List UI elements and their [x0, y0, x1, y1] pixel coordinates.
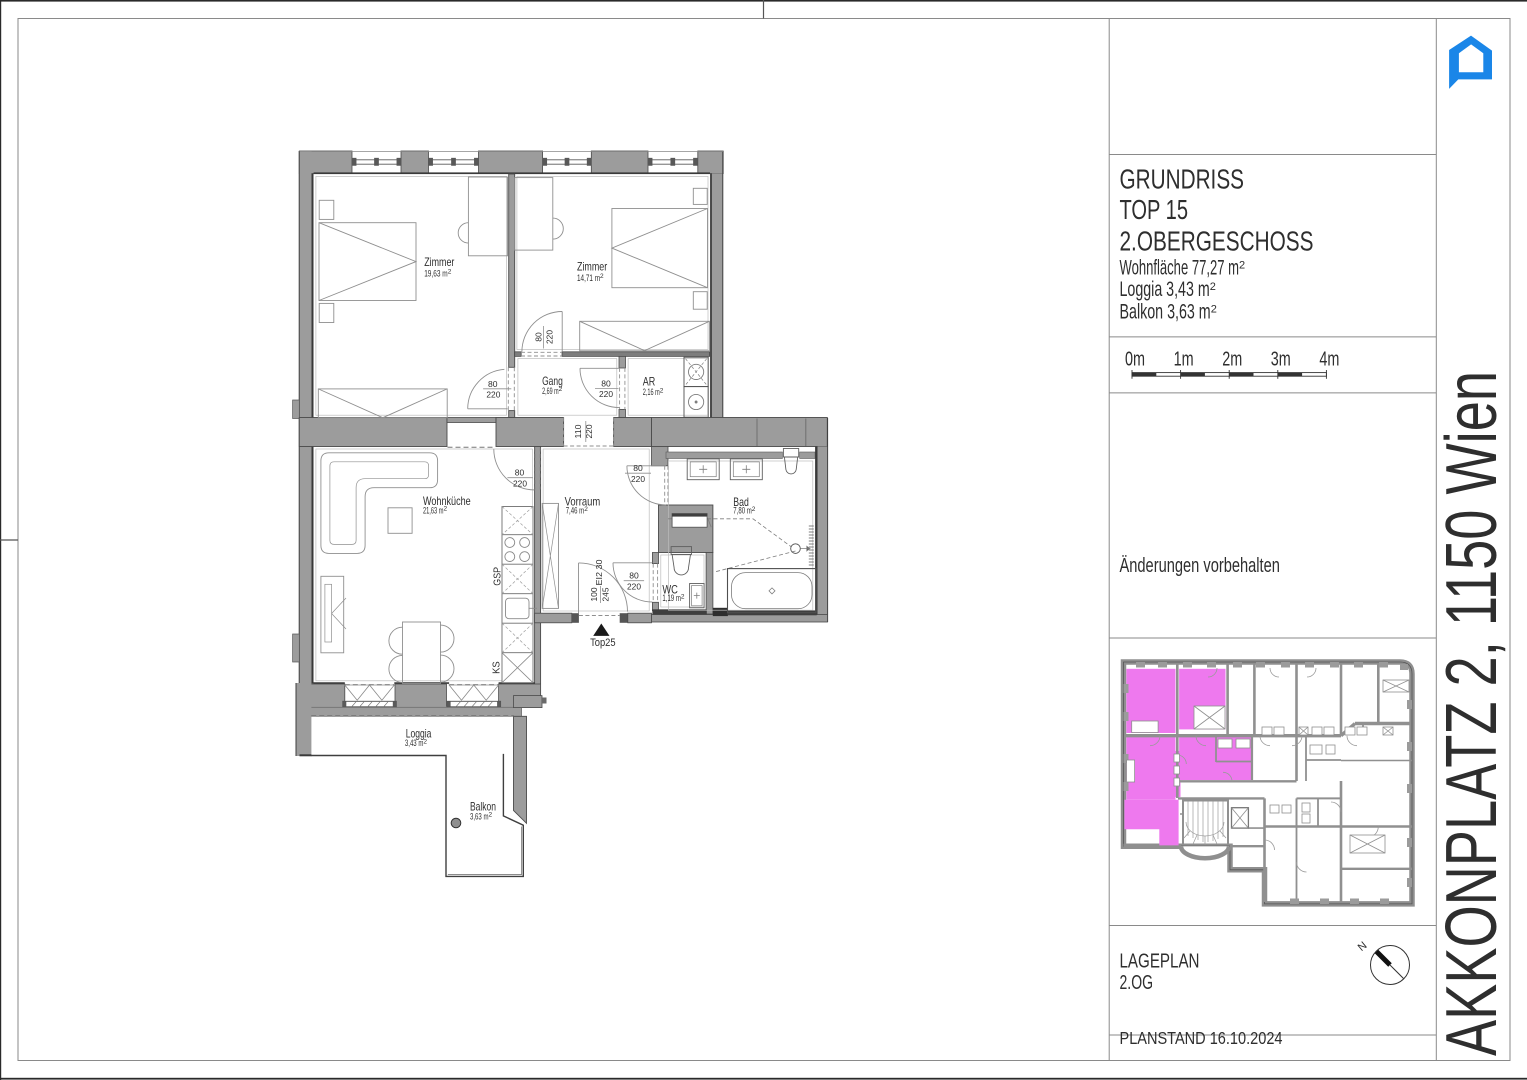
- svg-text:PLANSTAND 16.10.2024: PLANSTAND 16.10.2024: [1120, 1028, 1283, 1048]
- svg-text:80: 80: [515, 469, 525, 478]
- svg-text:80: 80: [488, 380, 498, 389]
- svg-text:Wohnfläche 77,27 m2: Wohnfläche 77,27 m2: [1120, 257, 1246, 280]
- svg-text:1m: 1m: [1174, 348, 1194, 370]
- svg-text:220: 220: [627, 583, 641, 592]
- svg-text:Top25: Top25: [590, 637, 616, 649]
- svg-text:0m: 0m: [1125, 348, 1145, 370]
- svg-text:110: 110: [574, 424, 583, 438]
- svg-text:GSP: GSP: [492, 567, 504, 586]
- svg-text:80: 80: [535, 332, 544, 342]
- svg-text:2.OG: 2.OG: [1120, 972, 1154, 994]
- svg-text:220: 220: [631, 475, 645, 484]
- svg-text:Loggia 3,43 m2: Loggia 3,43 m2: [1120, 278, 1216, 301]
- svg-text:TOP 15: TOP 15: [1120, 194, 1189, 225]
- svg-text:220: 220: [585, 424, 594, 438]
- svg-text:EI2 30: EI2 30: [595, 559, 604, 585]
- svg-text:220: 220: [486, 391, 500, 400]
- svg-text:80: 80: [601, 380, 611, 389]
- svg-text:80: 80: [633, 464, 643, 473]
- svg-text:220: 220: [599, 390, 613, 399]
- svg-text:2.OBERGESCHOSS: 2.OBERGESCHOSS: [1120, 226, 1314, 257]
- svg-text:80: 80: [629, 572, 639, 581]
- svg-text:AKKONPLATZ 2, 1150 Wien: AKKONPLATZ 2, 1150 Wien: [1432, 371, 1512, 1056]
- svg-text:GRUNDRISS: GRUNDRISS: [1120, 164, 1245, 195]
- svg-text:4m: 4m: [1319, 348, 1339, 370]
- svg-text:Balkon 3,63 m2: Balkon 3,63 m2: [1120, 301, 1217, 324]
- svg-text:2m: 2m: [1222, 348, 1242, 370]
- svg-text:220: 220: [513, 480, 527, 489]
- svg-text:220: 220: [546, 330, 555, 344]
- svg-text:100: 100: [590, 587, 599, 601]
- svg-text:Zimmer: Zimmer: [577, 260, 607, 274]
- svg-text:KS: KS: [491, 661, 503, 674]
- svg-text:LAGEPLAN: LAGEPLAN: [1120, 951, 1200, 973]
- svg-text:Zimmer: Zimmer: [424, 255, 454, 269]
- svg-text:Änderungen vorbehalten: Änderungen vorbehalten: [1120, 555, 1280, 577]
- svg-text:14,71 m2: 14,71 m2: [577, 273, 604, 283]
- svg-text:19,63 m2: 19,63 m2: [424, 268, 452, 278]
- svg-text:3m: 3m: [1271, 348, 1291, 370]
- svg-text:245: 245: [602, 587, 611, 601]
